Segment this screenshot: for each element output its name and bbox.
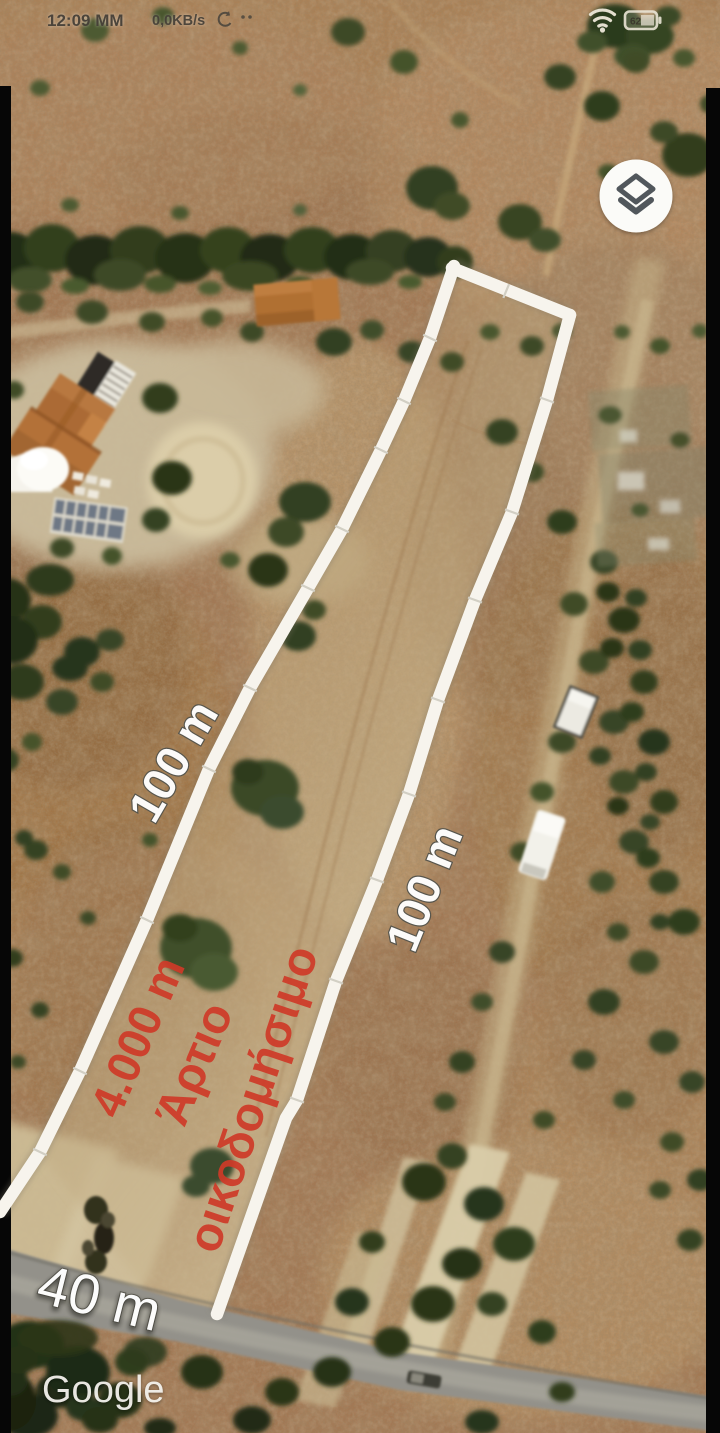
svg-text:Google: Google: [42, 1369, 165, 1411]
svg-text:12:09 MM: 12:09 MM: [47, 11, 124, 30]
svg-text:62: 62: [630, 17, 642, 28]
svg-text:0,0KB/s: 0,0KB/s: [152, 13, 205, 29]
